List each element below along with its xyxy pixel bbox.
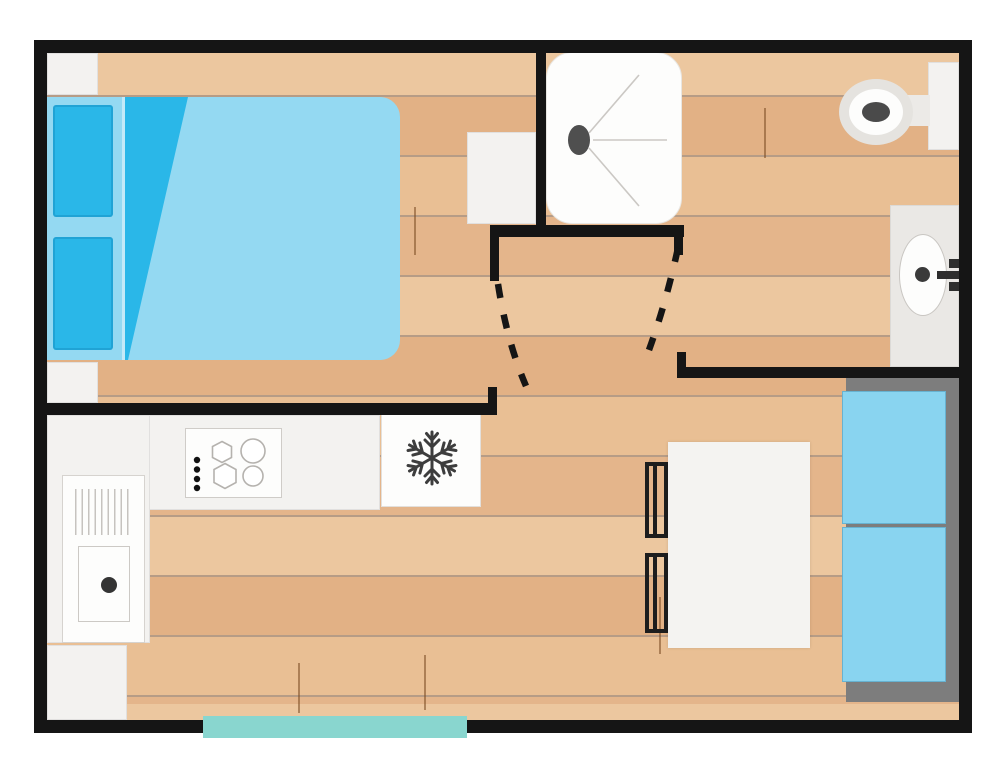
outer-walls	[34, 40, 972, 733]
entrance-step	[203, 716, 467, 738]
floor-plan	[0, 0, 1000, 768]
